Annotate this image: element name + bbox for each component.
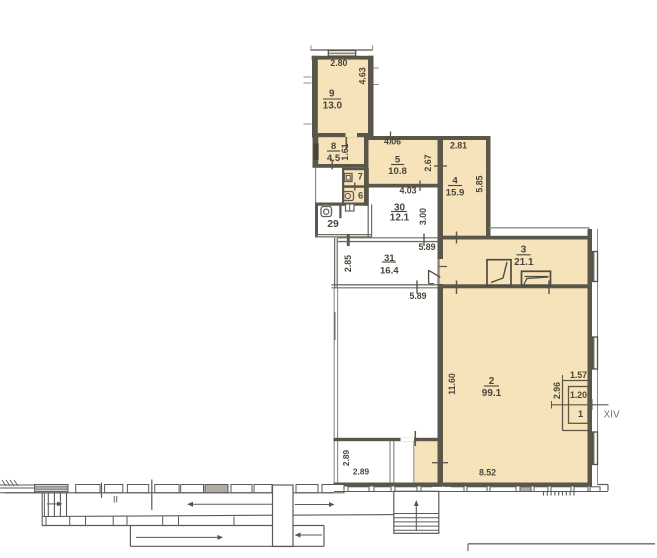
- svg-text:10.8: 10.8: [388, 166, 407, 177]
- svg-text:4.5: 4.5: [327, 153, 341, 164]
- svg-text:3.00: 3.00: [418, 208, 428, 225]
- svg-text:1.57: 1.57: [570, 370, 587, 380]
- svg-text:6: 6: [358, 190, 363, 200]
- svg-text:4.63: 4.63: [358, 67, 368, 84]
- svg-text:2.89: 2.89: [353, 467, 370, 477]
- svg-text:16.4: 16.4: [380, 266, 399, 277]
- svg-text:1: 1: [578, 409, 584, 420]
- svg-text:21.1: 21.1: [514, 257, 534, 268]
- svg-text:2.67: 2.67: [423, 154, 433, 171]
- svg-text:13.0: 13.0: [323, 101, 343, 112]
- svg-text:II: II: [113, 494, 118, 504]
- svg-text:29: 29: [327, 219, 339, 230]
- svg-text:15.9: 15.9: [446, 188, 465, 199]
- svg-text:XIV: XIV: [604, 410, 620, 421]
- svg-text:5: 5: [395, 154, 401, 165]
- svg-text:8: 8: [331, 141, 337, 152]
- svg-text:8.52: 8.52: [479, 467, 496, 477]
- svg-text:2.81: 2.81: [450, 141, 467, 151]
- svg-text:7: 7: [358, 172, 363, 182]
- svg-text:4.06: 4.06: [384, 137, 401, 147]
- svg-text:3: 3: [521, 244, 527, 255]
- svg-text:4.03: 4.03: [399, 186, 416, 196]
- svg-text:99.1: 99.1: [482, 388, 502, 399]
- svg-text:12.1: 12.1: [390, 213, 410, 224]
- svg-text:2.85: 2.85: [343, 255, 353, 272]
- svg-text:5.85: 5.85: [475, 175, 485, 192]
- svg-text:4: 4: [452, 175, 458, 186]
- svg-text:5.89: 5.89: [418, 242, 435, 252]
- svg-text:2.96: 2.96: [552, 382, 562, 399]
- svg-text:2.89: 2.89: [341, 450, 351, 467]
- svg-text:1.61: 1.61: [340, 143, 350, 160]
- svg-text:2.80: 2.80: [330, 58, 347, 68]
- svg-text:11.60: 11.60: [447, 373, 457, 395]
- svg-text:9: 9: [329, 89, 335, 100]
- svg-text:2: 2: [489, 376, 495, 387]
- svg-text:5.89: 5.89: [409, 291, 426, 301]
- svg-text:1.20: 1.20: [570, 390, 587, 400]
